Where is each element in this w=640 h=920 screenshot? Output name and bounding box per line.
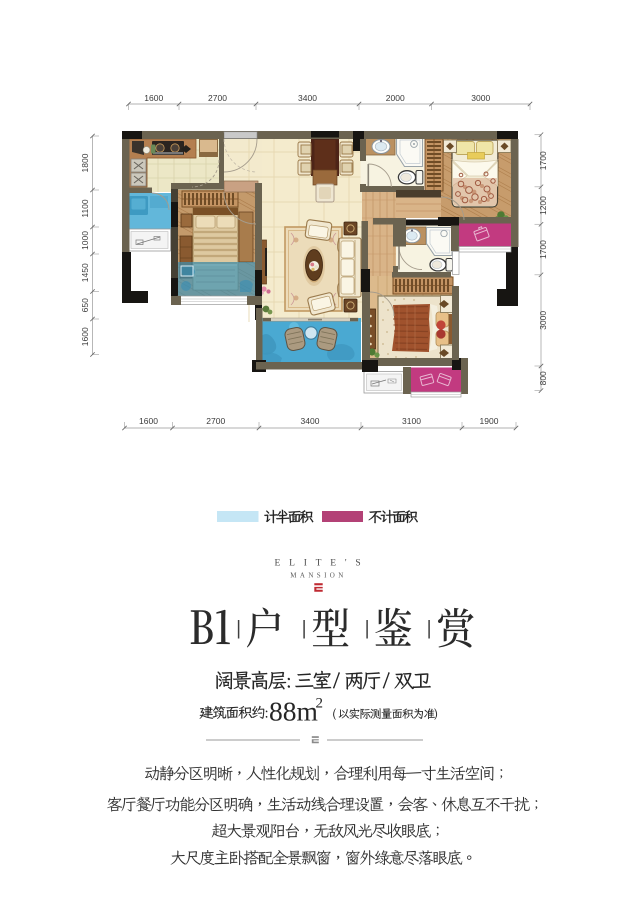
svg-text:1700: 1700 [538,240,548,259]
svg-text:88m: 88m [269,696,318,727]
svg-text:2700: 2700 [206,416,225,426]
svg-text:1700: 1700 [538,151,548,170]
svg-text:1800: 1800 [80,153,90,172]
svg-text:3000: 3000 [538,311,548,330]
svg-text:1600: 1600 [144,93,163,103]
svg-text:2: 2 [316,696,324,712]
svg-text:3400: 3400 [301,416,320,426]
svg-text:2700: 2700 [208,93,227,103]
svg-text:1600: 1600 [80,327,90,346]
svg-text:2000: 2000 [386,93,405,103]
svg-text:1600: 1600 [139,416,158,426]
svg-text:650: 650 [80,298,90,312]
svg-text:3000: 3000 [471,93,490,103]
svg-text:1450: 1450 [80,263,90,282]
svg-text:MANSION: MANSION [290,572,346,580]
svg-text:1000: 1000 [80,231,90,250]
svg-text:1200: 1200 [538,196,548,215]
svg-text:1100: 1100 [80,199,90,218]
svg-text:1900: 1900 [480,416,499,426]
svg-text:3400: 3400 [298,93,317,103]
svg-text:ELITE'S: ELITE'S [275,559,370,569]
svg-text:800: 800 [538,371,548,385]
svg-text:3100: 3100 [402,416,421,426]
